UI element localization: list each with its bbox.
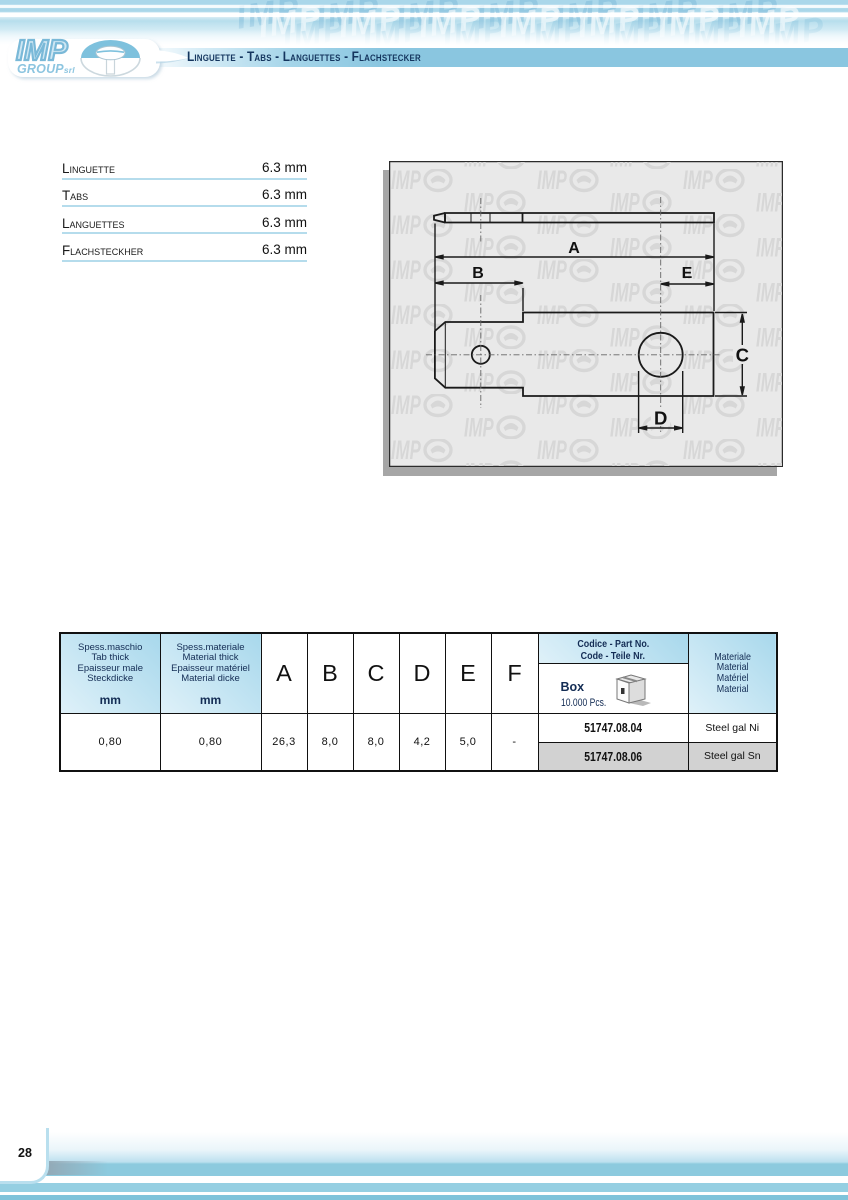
svg-text:A: A [568,240,580,257]
svg-text:B: B [472,265,484,282]
svg-text:E: E [682,265,693,282]
svg-text:C: C [736,345,749,366]
svg-text:D: D [654,408,667,429]
